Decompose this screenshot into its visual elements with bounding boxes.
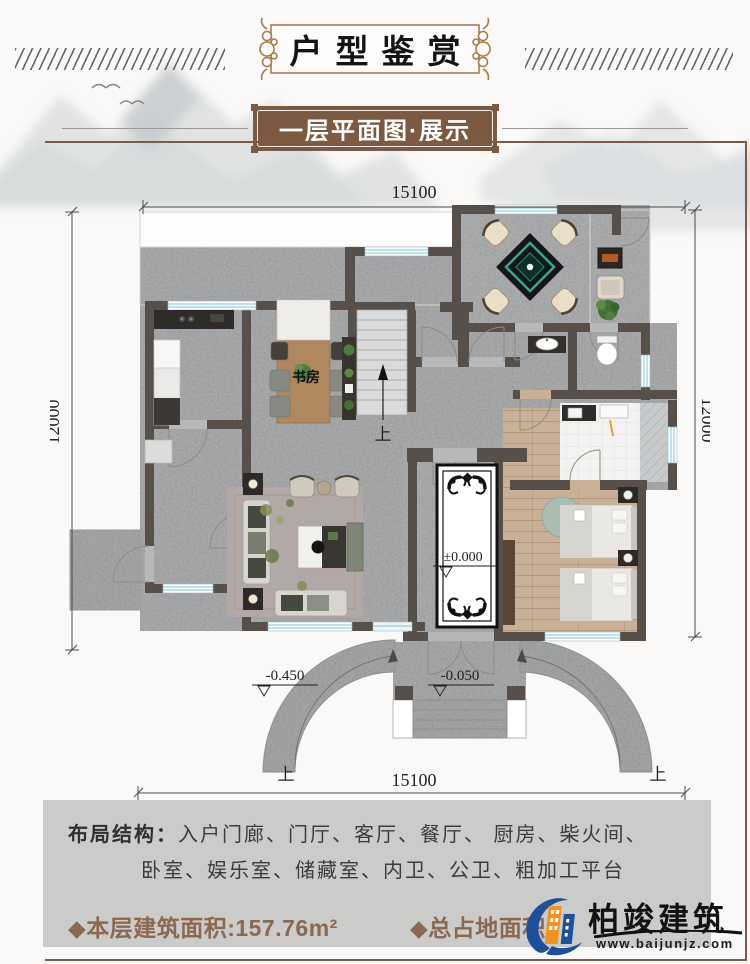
stairs: [357, 310, 407, 420]
fireplace: [598, 248, 622, 268]
floor-area-text: ◆本层建筑面积:157.76m²: [68, 909, 338, 943]
layout-structure-row: 布局结构：入户门廊、门厅、客厅、餐厅、 厨房、柴火间、: [68, 818, 698, 852]
divider-line-right: [502, 128, 688, 129]
window: [365, 247, 428, 256]
dim-right-label: 12000: [698, 398, 710, 443]
study-room-label: 书房: [292, 369, 320, 385]
plaque-corner: [492, 104, 499, 111]
svg-text:-0.050: -0.050: [441, 668, 480, 684]
porch-rug: [437, 465, 497, 627]
dim-left-label: 12000: [50, 400, 63, 445]
company-logo: 柏竣建筑 www.baijunjz.com: [516, 894, 748, 958]
window: [668, 427, 677, 463]
header-hatch-right: [525, 48, 733, 70]
wardrobe: [503, 540, 515, 625]
divider-line-left: [62, 128, 248, 129]
bed: [560, 568, 637, 621]
shower-floor: [640, 403, 668, 482]
plant-shelf: [342, 337, 356, 420]
dim-bottom-label: 15100: [392, 770, 437, 790]
window: [545, 632, 620, 641]
floor-plan-drawing: 15100 15100 12000 12000 上 上 上 书房 ±0.000 …: [50, 158, 710, 818]
svg-text:-0.450: -0.450: [266, 668, 305, 684]
level-symbol-icon: [258, 686, 270, 696]
window: [268, 622, 352, 631]
coffee-table: [298, 526, 346, 568]
plaque-corner: [251, 146, 258, 153]
window: [495, 205, 557, 214]
title-plaque: 户型鉴赏: [245, 18, 505, 80]
window: [641, 355, 650, 387]
subtitle-text: 一层平面图·展示: [257, 110, 493, 147]
window: [163, 584, 213, 593]
layout-structure-label: 布局结构：: [68, 824, 178, 846]
page-title: 户型鉴赏: [245, 18, 505, 80]
nightstand: [618, 550, 638, 566]
subtitle-plaque: 一层平面图·展示: [253, 106, 497, 151]
dim-top-label: 15100: [392, 182, 437, 202]
ramp-up-left-label: 上: [278, 765, 295, 784]
living-room: [227, 473, 363, 617]
bird-icon: [92, 85, 144, 105]
floor-plan: 15100 15100 12000 12000 上 上 上 书房 ±0.000 …: [50, 158, 710, 818]
plaque-corner: [492, 146, 499, 153]
logo-mark-icon: [516, 894, 594, 958]
stairs-up-label: 上: [375, 425, 392, 444]
svg-text:±0.000: ±0.000: [443, 550, 482, 565]
ramp-up-right-label: 上: [650, 765, 667, 784]
window: [373, 622, 412, 631]
header-hatch-left: [15, 48, 225, 70]
layout-structure-line1: 入户门廊、门厅、客厅、餐厅、 厨房、柴火间、: [178, 824, 648, 846]
company-website: www.baijunjz.com: [596, 936, 734, 951]
bench: [347, 523, 363, 571]
terrace-armchair: [597, 276, 624, 299]
nightstand: [618, 487, 638, 503]
layout-structure-line2: 卧室、娱乐室、储藏室、内卫、公卫、粗加工平台: [68, 854, 698, 888]
window: [168, 301, 256, 310]
